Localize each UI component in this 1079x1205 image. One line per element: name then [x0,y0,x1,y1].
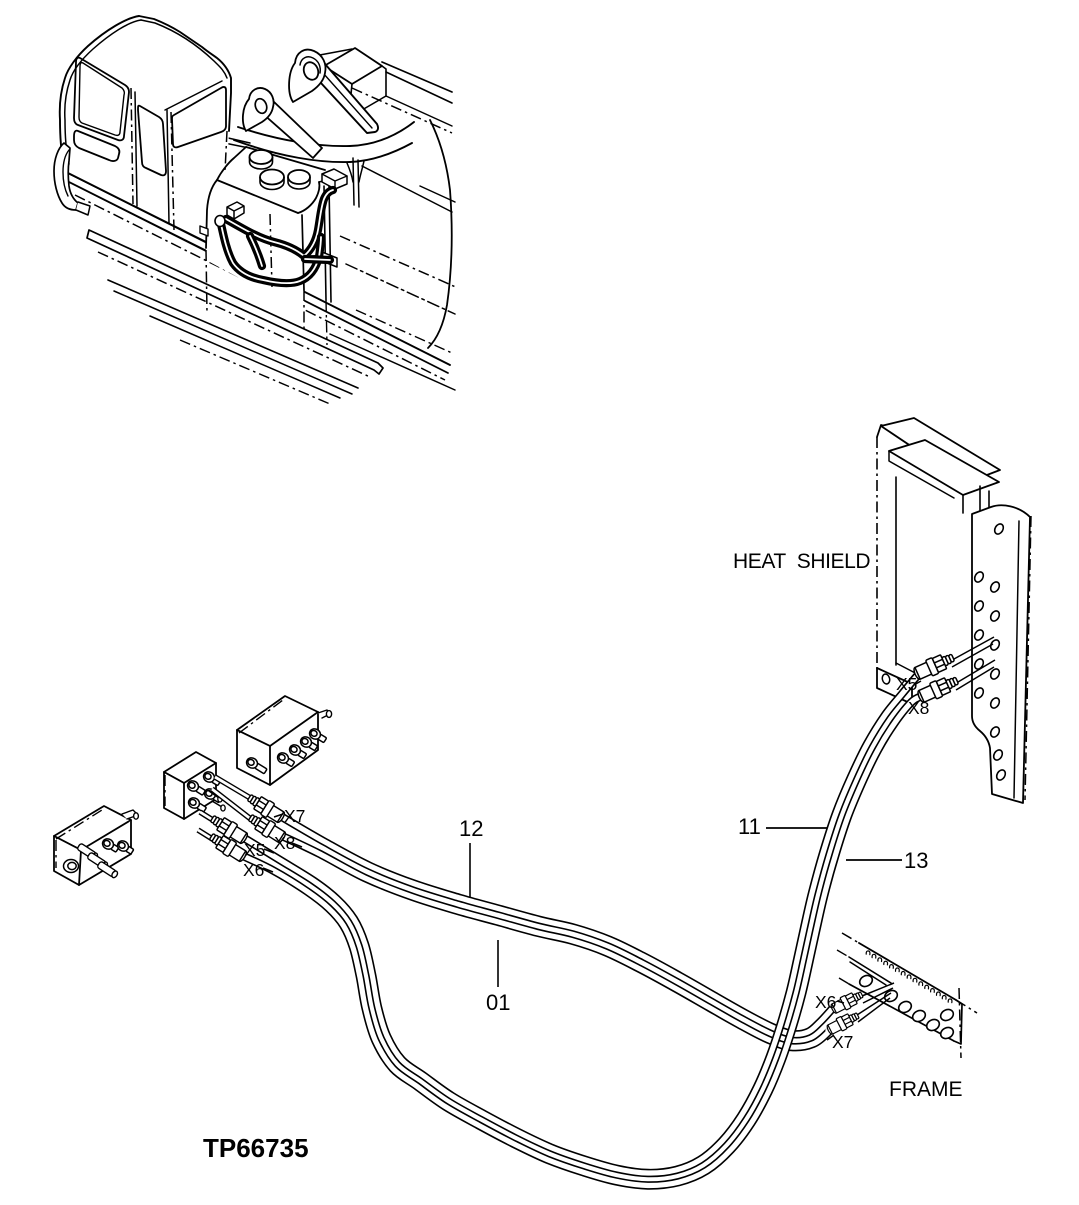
svg-text:X8: X8 [908,698,929,718]
svg-text:HEAT SHIELD: HEAT SHIELD [733,550,870,573]
svg-text:01: 01 [486,990,510,1015]
svg-text:X5: X5 [244,840,265,860]
svg-text:X6: X6 [815,992,836,1012]
svg-text:12: 12 [459,816,483,841]
svg-text:X7: X7 [284,806,305,826]
svg-text:TP66735: TP66735 [203,1133,309,1163]
svg-text:X6: X6 [243,860,264,880]
svg-text:X7: X7 [832,1032,853,1052]
svg-text:FRAME: FRAME [889,1078,963,1101]
svg-text:13: 13 [904,848,928,873]
svg-text:11: 11 [738,814,761,839]
svg-text:X5: X5 [896,674,917,694]
